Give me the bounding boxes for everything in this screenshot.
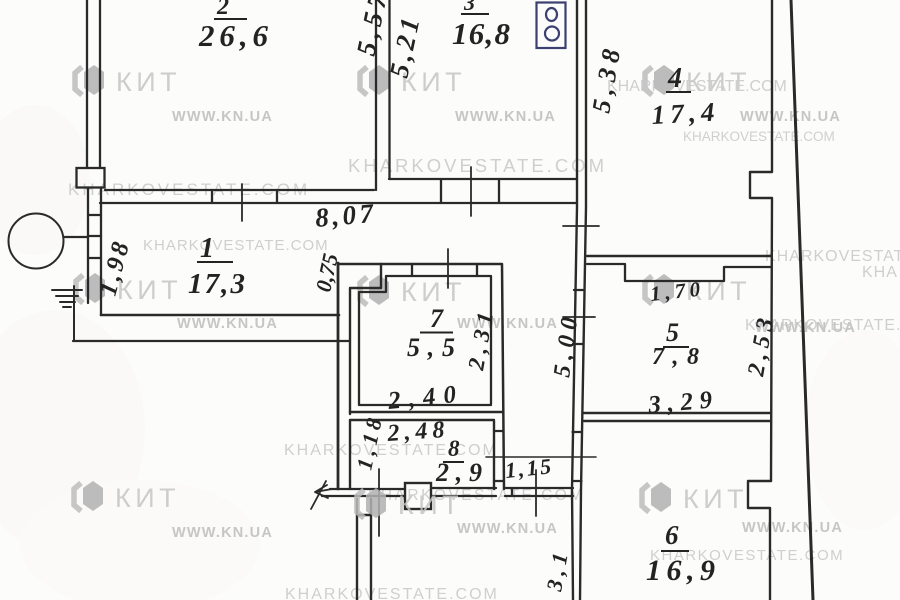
svg-text:8,07: 8,07	[314, 198, 376, 233]
svg-text:KHARKOVESTATE.COM: KHARKOVESTATE.COM	[348, 155, 607, 176]
svg-text:4: 4	[667, 63, 682, 94]
svg-text:16,8: 16,8	[452, 16, 511, 51]
svg-text:KHARKOVESTATE.COM: KHARKOVESTATE.COM	[683, 129, 835, 144]
svg-text:26,6: 26,6	[198, 18, 269, 53]
svg-text:2: 2	[216, 0, 229, 20]
svg-text:7: 7	[430, 304, 444, 333]
svg-text:17,3: 17,3	[188, 268, 245, 300]
svg-text:5,5: 5,5	[407, 333, 455, 362]
svg-text:WWW.KN.UA: WWW.KN.UA	[172, 109, 273, 125]
svg-text:WWW.KN.UA: WWW.KN.UA	[457, 521, 558, 537]
svg-text:3: 3	[463, 0, 475, 15]
svg-text:KHA: KHA	[862, 264, 898, 281]
svg-text:WWW.KN.UA: WWW.KN.UA	[172, 525, 273, 541]
svg-text:1: 1	[200, 233, 214, 264]
svg-text:WWW.KN.UA: WWW.KN.UA	[455, 109, 556, 125]
svg-text:KHARKOVESTATE.COM: KHARKOVESTATE.COM	[143, 237, 329, 254]
svg-text:1,15: 1,15	[504, 453, 552, 483]
svg-text:KHARKOVESTATE.COM: KHARKOVESTATE.COM	[285, 586, 499, 600]
svg-text:WWW.KN.UA: WWW.KN.UA	[742, 520, 843, 536]
svg-text:2,48: 2,48	[386, 417, 446, 447]
svg-text:16,9: 16,9	[646, 554, 715, 587]
svg-text:KHARKOVESTAT: KHARKOVESTAT	[765, 248, 900, 265]
svg-text:6: 6	[665, 520, 679, 550]
svg-text:5: 5	[666, 318, 679, 347]
svg-text:WWW.KN.UA: WWW.KN.UA	[740, 109, 841, 125]
svg-text:17,4: 17,4	[651, 97, 715, 130]
svg-text:WWW.KN.UA: WWW.KN.UA	[177, 316, 278, 332]
